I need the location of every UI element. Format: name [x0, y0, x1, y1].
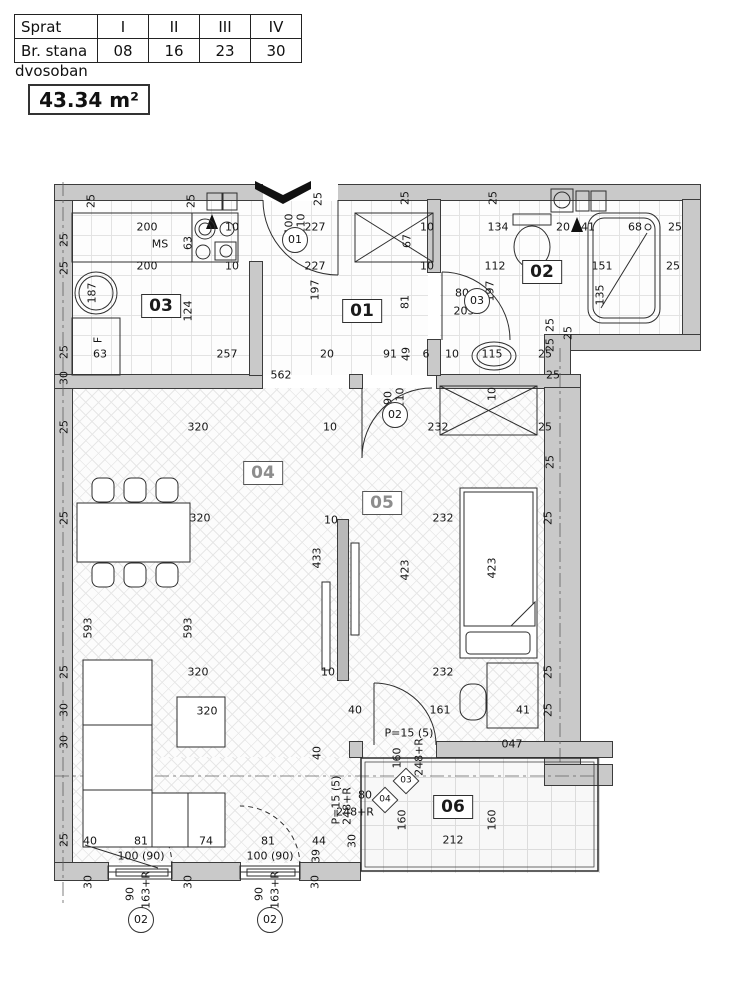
door-window-tag: 01	[282, 227, 308, 253]
dimension-label: 25	[58, 233, 71, 247]
dimension-label: 81	[134, 835, 148, 848]
dimension-label: 81	[261, 835, 275, 848]
diamond-tag: 04	[372, 787, 399, 814]
room-number-label: 06	[433, 795, 473, 819]
dimension-label: 41	[581, 221, 595, 234]
dimension-label: 151	[592, 260, 613, 273]
dimension-label: 25	[544, 338, 557, 352]
dimension-label: 90	[124, 887, 137, 901]
apartment-info-table: SpratIIIIIIIVBr. stana08162330	[14, 14, 302, 63]
dimension-label: 248+R	[413, 738, 426, 776]
dimension-label: 10	[321, 666, 335, 679]
dimension-label: 10	[225, 260, 239, 273]
dimension-label: 200	[137, 221, 158, 234]
door-window-tag: 02	[382, 402, 408, 428]
dimension-label: 423	[486, 558, 499, 579]
dimension-label: 232	[428, 421, 449, 434]
value-cell: 16	[149, 39, 200, 63]
dimension-label: 212	[443, 834, 464, 847]
dimension-label: 100 (90)	[117, 850, 164, 863]
dimension-label: 25	[58, 665, 71, 679]
dimension-label: 433	[311, 548, 324, 569]
dimension-label: 40	[311, 746, 324, 760]
value-cell: II	[149, 15, 200, 39]
room-number-label: 04	[243, 461, 283, 485]
dimension-label: 20	[320, 348, 334, 361]
row-header-cell: Br. stana	[15, 39, 98, 63]
diamond-tag-text: 04	[377, 792, 394, 809]
dimension-label: 20	[556, 221, 570, 234]
dimension-label: 160	[391, 748, 404, 769]
dimension-label: 160	[396, 810, 409, 831]
dimension-label: 30	[309, 875, 322, 889]
dimension-label: 25	[542, 665, 555, 679]
dimension-label: 25	[562, 326, 575, 340]
dimension-label: 91	[383, 348, 397, 361]
dimension-label: MS	[152, 238, 168, 251]
dimension-label: 135	[594, 285, 607, 306]
dimension-label: 30	[182, 875, 195, 889]
dimension-label: 160	[486, 810, 499, 831]
row-header-cell: Sprat	[15, 15, 98, 39]
dimension-label: 112	[485, 260, 506, 273]
dimension-label: 10	[225, 221, 239, 234]
dimension-label: 63	[93, 348, 107, 361]
room-number-label: 03	[141, 294, 181, 318]
floor-plan-page: SpratIIIIIIIVBr. stana08162330 dvosoban …	[0, 0, 746, 991]
dimension-label: 25	[58, 833, 71, 847]
room-number-label: 05	[362, 491, 402, 515]
dimension-label: 25	[58, 261, 71, 275]
dimension-label: 67	[401, 234, 414, 248]
dimension-label: 10	[486, 387, 499, 401]
dimension-label: 320	[188, 421, 209, 434]
dimension-label: 10	[420, 221, 434, 234]
dimension-label: 74	[199, 835, 213, 848]
dimension-label: 25	[538, 421, 552, 434]
dimension-label: 80	[358, 789, 372, 802]
dimension-label: 423	[399, 560, 412, 581]
dimension-label: 047	[502, 738, 523, 751]
dimension-label: 257	[217, 348, 238, 361]
annotation-layer: 2525252525200MS631020010187124F632571002…	[0, 0, 746, 991]
dimension-label: 30	[346, 834, 359, 848]
dimension-label: 25	[58, 420, 71, 434]
dimension-label: 25	[666, 260, 680, 273]
value-cell: 30	[251, 39, 302, 63]
dimension-label: 25	[312, 192, 325, 206]
dimension-label: 90	[253, 887, 266, 901]
dimension-label: 227	[305, 221, 326, 234]
value-cell: 08	[98, 39, 149, 63]
dimension-label: 161	[430, 704, 451, 717]
dimension-label: 81	[399, 295, 412, 309]
dimension-label: 30	[58, 371, 71, 385]
dimension-label: 10	[324, 514, 338, 527]
dimension-label: 25	[668, 221, 682, 234]
dimension-label: 44	[312, 835, 326, 848]
area-box: 43.34 m²	[28, 84, 150, 115]
dimension-label: 30	[58, 703, 71, 717]
dimension-label: 134	[488, 221, 509, 234]
dimension-label: 593	[182, 618, 195, 639]
dimension-label: 232	[433, 512, 454, 525]
value-cell: III	[200, 15, 251, 39]
dimension-label: 6	[423, 348, 430, 361]
dimension-label: 25	[185, 194, 198, 208]
dimension-label: 100 (90)	[246, 850, 293, 863]
room-number-label: 02	[522, 260, 562, 284]
dimension-label: 25	[487, 191, 500, 205]
area-value: 43.34 m²	[39, 88, 139, 112]
dimension-label: 10	[445, 348, 459, 361]
value-cell: 23	[200, 39, 251, 63]
value-cell: I	[98, 15, 149, 39]
dimension-label: 30	[58, 735, 71, 749]
dimension-label: 25	[544, 455, 557, 469]
dimension-label: 163+R	[269, 871, 282, 909]
dimension-label: 197	[309, 280, 322, 301]
dimension-label: 39	[310, 849, 323, 863]
dimension-label: 63	[182, 236, 195, 250]
dimension-label: 68	[628, 221, 642, 234]
dimension-label: 124	[182, 301, 195, 322]
dimension-label: 320	[197, 705, 218, 718]
dimension-label: 200	[137, 260, 158, 273]
dimension-label: 10	[323, 421, 337, 434]
dimension-label: 25	[399, 191, 412, 205]
dimension-label: 187	[86, 283, 99, 304]
dimension-label: F	[92, 337, 105, 343]
door-window-tag: 02	[257, 907, 283, 933]
dimension-label: 562	[271, 369, 292, 382]
apartment-type-label: dvosoban	[15, 62, 88, 80]
dimension-label: 49	[400, 347, 413, 361]
diamond-tag-text: 03	[398, 773, 415, 790]
dimension-label: 10	[420, 260, 434, 273]
dimension-label: 227	[305, 260, 326, 273]
dimension-label: 25	[542, 703, 555, 717]
dimension-label: P=15 (5)	[385, 727, 434, 740]
dimension-label: 25	[544, 318, 557, 332]
dimension-label: 320	[188, 666, 209, 679]
dimension-label: 25	[58, 345, 71, 359]
dimension-label: 593	[82, 618, 95, 639]
value-cell: IV	[251, 15, 302, 39]
dimension-label: 25	[542, 511, 555, 525]
dimension-label: 25	[85, 194, 98, 208]
door-window-tag: 03	[464, 288, 490, 314]
dimension-label: 41	[516, 704, 530, 717]
dimension-label: 40	[83, 835, 97, 848]
dimension-label: 115	[482, 348, 503, 361]
room-number-label: 01	[342, 299, 382, 323]
dimension-label: 320	[190, 512, 211, 525]
dimension-label: 163+R	[140, 871, 153, 909]
dimension-label: 232	[433, 666, 454, 679]
dimension-label: 25	[546, 369, 560, 382]
dimension-label: 25	[58, 511, 71, 525]
dimension-label: 30	[82, 875, 95, 889]
door-window-tag: 02	[128, 907, 154, 933]
dimension-label: 40	[348, 704, 362, 717]
dimension-label: 248+R	[336, 806, 374, 819]
